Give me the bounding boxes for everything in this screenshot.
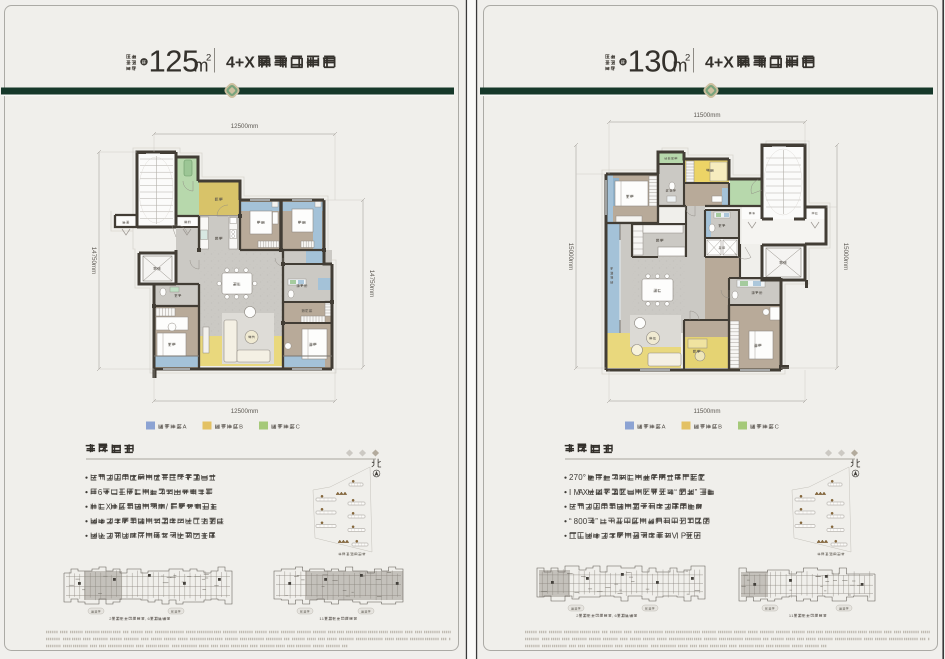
svg-text:I: I	[569, 488, 571, 497]
svg-text:A: A	[183, 425, 187, 431]
svg-text:11500mm: 11500mm	[693, 408, 720, 415]
svg-text:P: P	[681, 531, 686, 540]
svg-text:11500mm: 11500mm	[693, 112, 720, 119]
svg-text:B: B	[239, 425, 243, 431]
svg-text:12500mm: 12500mm	[231, 408, 259, 415]
svg-text:B: B	[718, 425, 722, 431]
svg-text:“: “	[674, 488, 677, 497]
svg-text:0: 0	[583, 517, 588, 526]
svg-text:“: “	[569, 517, 572, 526]
svg-text:°: °	[583, 473, 586, 482]
svg-text:130: 130	[628, 44, 678, 79]
svg-text:4+X: 4+X	[226, 55, 255, 72]
svg-text:14750mm: 14750mm	[368, 270, 375, 298]
svg-text:2: 2	[685, 53, 690, 64]
svg-text:125: 125	[149, 44, 199, 79]
svg-text:C: C	[296, 425, 300, 431]
svg-text:”: ”	[695, 488, 698, 497]
svg-text:2: 2	[206, 53, 211, 64]
svg-text:,: ,	[145, 616, 146, 621]
svg-text:12500mm: 12500mm	[231, 123, 259, 130]
svg-text:X: X	[106, 502, 112, 511]
svg-text:,: ,	[612, 613, 613, 618]
svg-text:I: I	[676, 531, 678, 540]
svg-text:X: X	[583, 488, 589, 497]
svg-text:4+X: 4+X	[705, 55, 734, 72]
svg-text:A: A	[662, 425, 666, 431]
svg-text:14750mm: 14750mm	[90, 247, 97, 275]
svg-text:C: C	[775, 425, 779, 431]
svg-text:6: 6	[98, 488, 103, 497]
svg-text:15000mm: 15000mm	[842, 243, 849, 271]
svg-text:15000mm: 15000mm	[567, 243, 574, 271]
svg-text:”: ”	[595, 517, 598, 526]
